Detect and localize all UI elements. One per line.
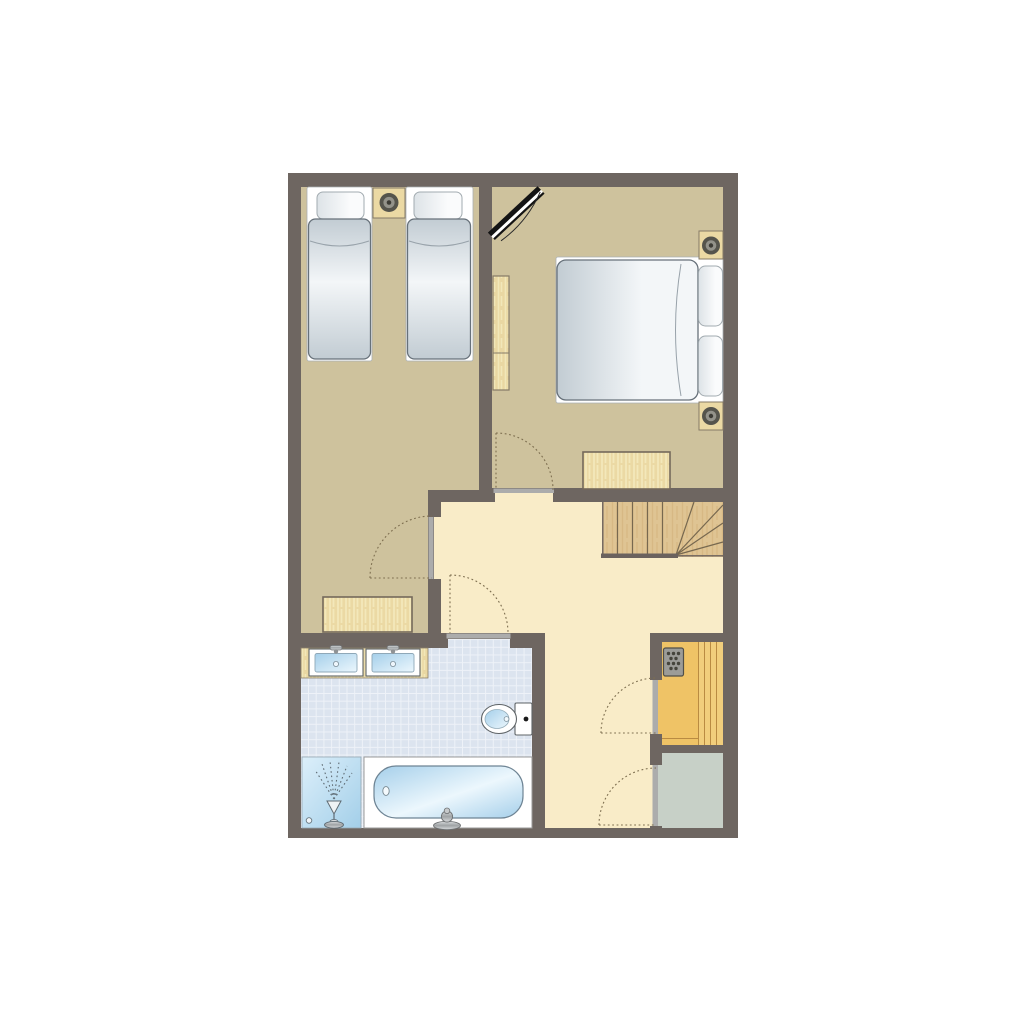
hall-floor-lower [545,633,650,828]
storage-door-leaf [653,765,659,826]
nightstand-bottom [699,402,723,430]
bedroom-left-door-leaf [429,517,434,579]
lamp-center-dot [387,200,392,205]
twin-bed-1 [307,187,372,361]
drain-icon [383,787,389,796]
sauna-door-opening-sauna-side [658,680,662,734]
dresser-right-bedroom [583,452,670,489]
wardrobe-body [493,276,509,390]
pillow [699,336,723,396]
bathroom-door-opening [448,639,510,648]
bedroom-left-door-opening [434,517,441,579]
mattress [557,260,698,400]
lamp-center-dot [709,414,713,418]
toilet [482,703,533,735]
storage-door-opening-storage-side [658,765,662,826]
pillow [317,192,364,219]
pillow [414,192,462,219]
flush-button-icon [524,717,529,722]
washbasin-2 [366,646,420,677]
floor-plan-image [0,0,1024,1024]
mattress [408,219,471,359]
sauna-door-leaf [653,680,659,734]
toilet-tank [515,703,532,735]
bathroom-door-leaf [447,634,511,639]
shower-tray [302,757,361,828]
drain-icon [504,717,509,722]
double-bed [556,257,723,403]
bedroom-right-door-leaf [494,489,555,494]
stair-bottom-edge [601,554,678,559]
sauna-heater [664,648,684,676]
ceiling-lamp-icon [702,407,720,425]
bathtub [364,757,532,830]
washbasin-1 [309,646,363,677]
faucet-tip [444,808,450,814]
faucet-base [434,821,461,829]
floor-plan-page [0,0,1024,1024]
drain-icon [333,661,338,666]
ceiling-lamp-icon [380,193,399,212]
wardrobe [493,276,509,390]
faucet-spout [391,649,395,653]
mattress [309,219,371,359]
staircase [601,502,723,558]
drain-icon [390,661,395,666]
nightstand-twin [373,188,405,218]
shower-base [325,821,344,828]
twin-bed-2 [406,187,473,361]
lamp-center-dot [709,243,713,247]
nightstand-top [699,231,723,259]
bedroom-right-door-opening [495,493,553,502]
dresser-left-bedroom [323,597,412,632]
faucet-spout [334,649,338,653]
storage-room-floor [662,753,723,828]
ceiling-lamp-icon [702,237,720,255]
pillow [699,266,723,326]
drain-icon [306,818,312,824]
shower [302,757,361,828]
